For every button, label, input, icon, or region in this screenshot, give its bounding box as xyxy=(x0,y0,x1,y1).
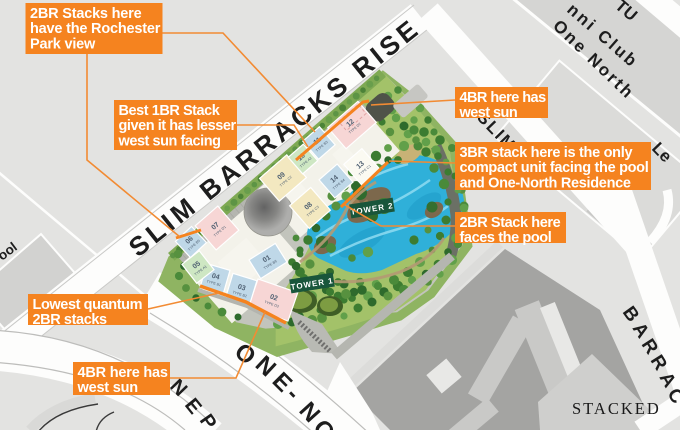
svg-text:Park view: Park view xyxy=(30,37,96,53)
svg-text:Best 1BR Stack: Best 1BR Stack xyxy=(119,103,221,119)
svg-text:STACKED: STACKED xyxy=(572,399,661,418)
svg-text:west sun: west sun xyxy=(77,380,138,396)
svg-text:given it has lesser: given it has lesser xyxy=(119,118,237,134)
svg-text:4BR here has: 4BR here has xyxy=(78,365,168,381)
svg-text:Lowest quantum: Lowest quantum xyxy=(33,297,143,313)
svg-text:compact unit facing the pool: compact unit facing the pool xyxy=(460,160,649,176)
svg-text:west sun facing: west sun facing xyxy=(118,134,221,150)
svg-text:2BR stacks: 2BR stacks xyxy=(33,312,108,328)
svg-text:3BR stack here is the only: 3BR stack here is the only xyxy=(460,145,633,161)
svg-text:west sun: west sun xyxy=(459,105,518,121)
svg-text:have the Rochester: have the Rochester xyxy=(30,21,161,37)
svg-text:4BR here has: 4BR here has xyxy=(460,90,547,106)
svg-text:2BR Stack here: 2BR Stack here xyxy=(460,215,561,231)
svg-text:2BR Stacks here: 2BR Stacks here xyxy=(30,6,142,22)
svg-text:and One-North Residence: and One-North Residence xyxy=(460,176,631,192)
svg-text:faces the pool: faces the pool xyxy=(460,230,552,246)
